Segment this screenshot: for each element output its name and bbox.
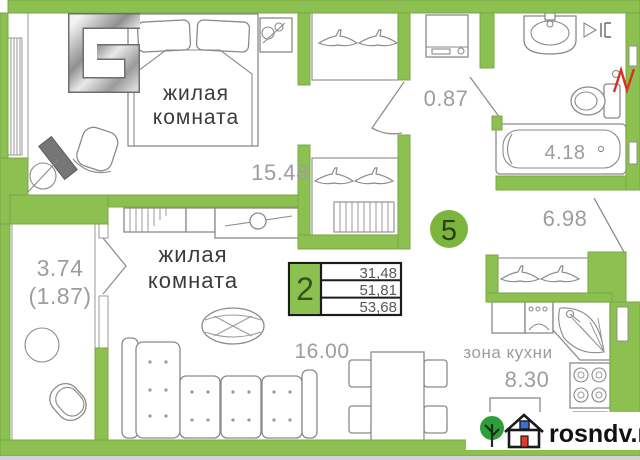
bedroom-label-line2: комната bbox=[153, 106, 239, 129]
bathroom-sink bbox=[524, 13, 576, 54]
wc-area: 0.87 bbox=[424, 86, 469, 111]
washing-machine bbox=[426, 15, 468, 57]
cabinet bbox=[186, 208, 215, 232]
living-label-line1: жилая bbox=[159, 242, 228, 267]
kitchen-hob bbox=[525, 302, 553, 333]
bedroom-area: 15.48 bbox=[251, 160, 309, 185]
summary-total-area: 53,68 bbox=[359, 299, 397, 316]
image-edge bbox=[0, 456, 640, 460]
balcony-area: 3.74 bbox=[37, 255, 84, 281]
floorplan-image: жилая комната 15.48 жилая комната 16.00 … bbox=[0, 0, 640, 460]
bedroom-label-line1: жилая bbox=[163, 82, 229, 105]
watermark-site: rosndv.ru bbox=[549, 420, 640, 448]
vent-shaft bbox=[629, 142, 637, 164]
hall-area: 6.98 bbox=[543, 206, 588, 231]
stove bbox=[570, 363, 610, 408]
vent-shaft bbox=[629, 46, 637, 66]
radiator bbox=[124, 208, 186, 232]
living-area: 16.00 bbox=[294, 340, 349, 363]
tv-stand bbox=[215, 208, 300, 238]
summary-living-area: 31,48 bbox=[359, 265, 397, 282]
rug bbox=[202, 308, 264, 344]
kitchen-area: 8.30 bbox=[505, 367, 550, 392]
section-badge: 5 bbox=[430, 210, 468, 248]
kitchen-label: зона кухни bbox=[463, 343, 552, 362]
kitchen-cabinet bbox=[492, 302, 525, 333]
summary-area: 51,81 bbox=[359, 282, 397, 299]
summary-table: 2 31,48 51,81 53,68 bbox=[289, 263, 401, 316]
balcony-area-coeff: (1.87) bbox=[28, 283, 91, 309]
summary-rooms-count: 2 bbox=[296, 271, 314, 307]
living-label-line2: комната bbox=[148, 268, 238, 293]
section-badge-number: 5 bbox=[441, 215, 457, 247]
nightstand bbox=[260, 18, 292, 52]
watermark: rosndv.ru bbox=[466, 412, 640, 450]
vent-shaft bbox=[617, 307, 628, 341]
bath-area: 4.18 bbox=[545, 142, 586, 164]
floorplan-svg: жилая комната 15.48 жилая комната 16.00 … bbox=[0, 0, 640, 460]
